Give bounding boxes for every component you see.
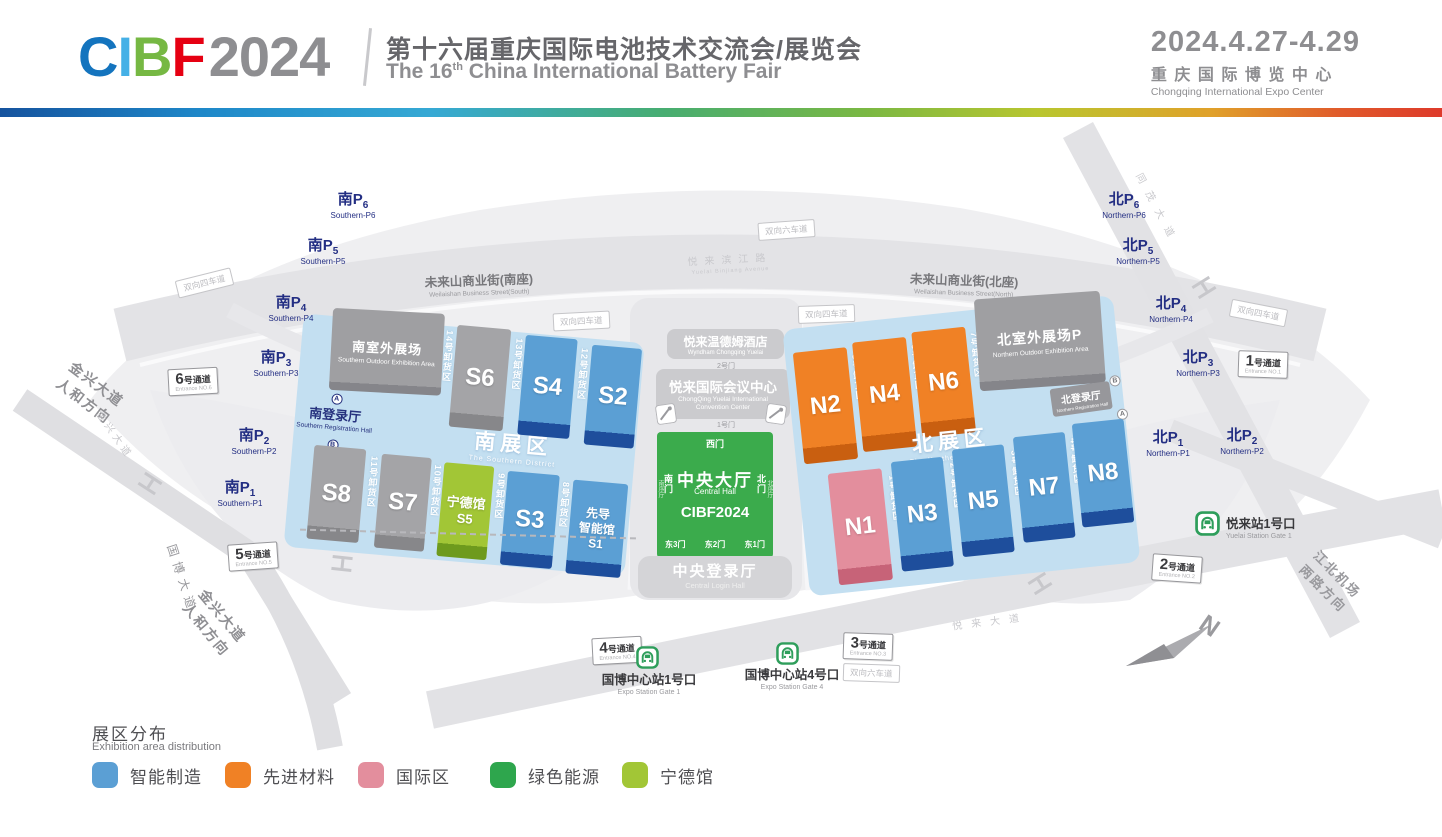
hall-s4: S4 <box>517 335 578 439</box>
legend-swatch <box>358 762 384 788</box>
southern-registration-english: Southern Registration Hall <box>296 422 372 436</box>
gate-door-1-label: 1号门 <box>696 420 756 430</box>
northern-outdoor-exhibition-area: 北室外展场P Northern Outdoor Exhibition Area <box>974 291 1106 392</box>
legend-item-advanced-materials: 先进材料 <box>225 762 335 788</box>
hotel-name-chinese: 悦来温德姆酒店 <box>667 333 784 350</box>
hall-n2-label: N2 <box>809 390 842 421</box>
legend-title-english: Exhibition area distribution <box>92 741 221 753</box>
parking-northern-p1: 北P1Northern-P1 <box>1122 430 1214 458</box>
passage-label-1: 1号通道Entrance NO.1 <box>1238 350 1289 379</box>
metro-icon <box>1195 511 1220 541</box>
convention-center-chinese: 悦来国际会议中心 <box>656 376 790 396</box>
cibf-logo: CIBF2024 <box>78 24 329 89</box>
north-exhibition-zone: N2 5号卸货区 N4 6号卸货区 N6 7号卸货区 北室外展场P Northe… <box>777 283 1141 601</box>
central-login-hall-label: 中央登录厅 Central Login Hall <box>638 560 792 590</box>
legend-swatch <box>490 762 516 788</box>
hall-s7-label: S7 <box>387 488 419 518</box>
hall-s3-label: S3 <box>514 505 546 535</box>
escalator-icon <box>765 403 788 426</box>
north-foyer-label: 北序厅 <box>765 480 774 498</box>
hall-s2: S2 <box>584 345 643 449</box>
fair-title-english-part1: The 16 <box>386 60 453 83</box>
logo-letter-c: C <box>78 24 117 89</box>
legend-label: 先进材料 <box>263 763 335 788</box>
passage-label-2: 2号通道Entrance NO.2 <box>1151 553 1203 583</box>
hall-n3-label: N3 <box>906 499 939 530</box>
four-lane-road-label: 双向四车道 <box>798 304 855 324</box>
expo-station-gate1-label: 国博中心站1号口Expo Station Gate 1 <box>578 670 720 698</box>
west-gate-label: 西门 <box>657 437 773 450</box>
hall-n5: N5 <box>952 444 1015 557</box>
passage-label-5: 5号通道Entrance NO.5 <box>227 541 279 571</box>
wyndham-hotel-block: 悦来温德姆酒店 Wyndham Chongqing Yuelai <box>667 329 784 359</box>
hall-n6-label: N6 <box>927 367 960 398</box>
escalator-icon <box>655 403 678 426</box>
event-dates: 2024.4.27-4.29 <box>1151 26 1360 59</box>
passage-label-6: 6号通道Entrance NO.6 <box>167 367 219 397</box>
four-lane-road-label: 双向四车道 <box>553 311 610 332</box>
hall-n4-label: N4 <box>868 379 901 410</box>
legend-swatch <box>622 762 648 788</box>
overpass-icon <box>331 555 352 572</box>
hall-n7-label: N7 <box>1027 472 1060 503</box>
parking-southern-p3: 南P3Southern-P3 <box>230 350 322 378</box>
central-hall-building: 西门 南门 北门 中央大厅 Central Hall CIBF2024 东3门 … <box>657 432 773 558</box>
central-login-hall-english: Central Login Hall <box>638 581 792 590</box>
venue-name-chinese: 重庆国际博览中心 <box>1151 61 1360 85</box>
legend-label: 智能制造 <box>130 763 202 788</box>
fair-title-english-part2: China International Battery Fair <box>463 60 782 83</box>
central-login-hall-chinese: 中央登录厅 <box>672 563 757 580</box>
parking-northern-p4: 北P4Northern-P4 <box>1125 296 1217 324</box>
passage-label-3: 3号通道Entrance NO.3 <box>843 632 894 661</box>
legend-item-international-zone: 国际区 <box>358 762 450 788</box>
logo-letter-f: F <box>171 24 204 89</box>
east-gate-1-label: 东1门 <box>745 539 765 550</box>
hall-s5-name: 宁德馆 <box>446 493 486 513</box>
hall-n8-label: N8 <box>1086 458 1119 489</box>
parking-northern-p3: 北P3Northern-P3 <box>1152 350 1244 378</box>
legend-item-intelligent-manufacturing: 智能制造 <box>92 762 202 788</box>
parking-southern-p1: 南P1Southern-P1 <box>194 480 286 508</box>
marker-a-badge: A <box>331 393 343 405</box>
hall-s6-label: S6 <box>464 363 496 393</box>
southern-registration-chinese: 南登录厅 <box>309 406 362 425</box>
hall-n5-label: N5 <box>967 485 1000 516</box>
event-info: 2024.4.27-4.29 重庆国际博览中心 Chongqing Intern… <box>1151 26 1360 98</box>
fair-title-english: The 16th China International Battery Fai… <box>386 60 781 84</box>
hall-s4-label: S4 <box>532 372 564 402</box>
hotel-name-english: Wyndham Chongqing Yuelai <box>667 350 784 356</box>
expo-station-gate4-label: 国博中心站4号口Expo Station Gate 4 <box>718 665 866 693</box>
parking-southern-p6: 南P6Southern-P6 <box>307 192 399 220</box>
hall-n1-label: N1 <box>844 511 877 542</box>
south-exhibition-zone: 南室外展场 Southern Outdoor Exhibition Area 1… <box>283 307 647 584</box>
southern-registration-hall: A 南登录厅 Southern Registration Hall B <box>294 383 375 455</box>
parking-southern-p4: 南P4Southern-P4 <box>245 295 337 323</box>
hall-s5-catl: 宁德馆 S5 <box>436 462 494 560</box>
parking-southern-p5: 南P5Southern-P5 <box>277 238 369 266</box>
fair-title-english-sup: th <box>453 61 463 73</box>
legend-swatch <box>225 762 251 788</box>
logo-letter-i: I <box>117 24 132 89</box>
hall-s5-label: S5 <box>456 511 473 529</box>
southern-outdoor-exhibition-area: 南室外展场 Southern Outdoor Exhibition Area <box>329 308 445 396</box>
south-foyer-label: 南序厅 <box>656 480 665 498</box>
hall-n6: N6 <box>911 327 976 438</box>
hall-s6: S6 <box>449 325 512 431</box>
yuelai-station-gate1-label: 悦来站1号口Yuelai Station Gate 1 <box>1226 514 1322 542</box>
hall-n2: N2 <box>793 347 858 464</box>
legend-swatch <box>92 762 118 788</box>
legend-label: 绿色能源 <box>528 763 600 788</box>
hall-s8-label: S8 <box>320 479 352 509</box>
legend-label: 宁德馆 <box>660 763 714 788</box>
central-hall-brand: CIBF2024 <box>657 504 773 521</box>
logo-year: 2024 <box>209 24 330 89</box>
header-divider <box>363 28 372 86</box>
hall-n7: N7 <box>1013 432 1076 543</box>
hall-s3: S3 <box>500 471 560 569</box>
hall-s7: S7 <box>374 454 432 552</box>
venue-name-english: Chongqing International Expo Center <box>1151 86 1360 98</box>
legend-item-green-energy: 绿色能源 <box>490 762 600 788</box>
central-hall-english: Central Hall <box>657 487 773 496</box>
parking-southern-p2: 南P2Southern-P2 <box>208 428 300 456</box>
legend-label: 国际区 <box>396 763 450 788</box>
logo-letter-b: B <box>132 24 171 89</box>
hall-n1: N1 <box>828 468 893 585</box>
hall-s1-leader: 先导 智能馆 S1 <box>565 480 628 578</box>
hall-s2-label: S2 <box>597 381 629 411</box>
cibf2024-venue-map: CIBF2024 第十六届重庆国际电池技术交流会/展览会 The 16th Ch… <box>0 0 1442 837</box>
legend-item-catl-hall: 宁德馆 <box>622 762 714 788</box>
